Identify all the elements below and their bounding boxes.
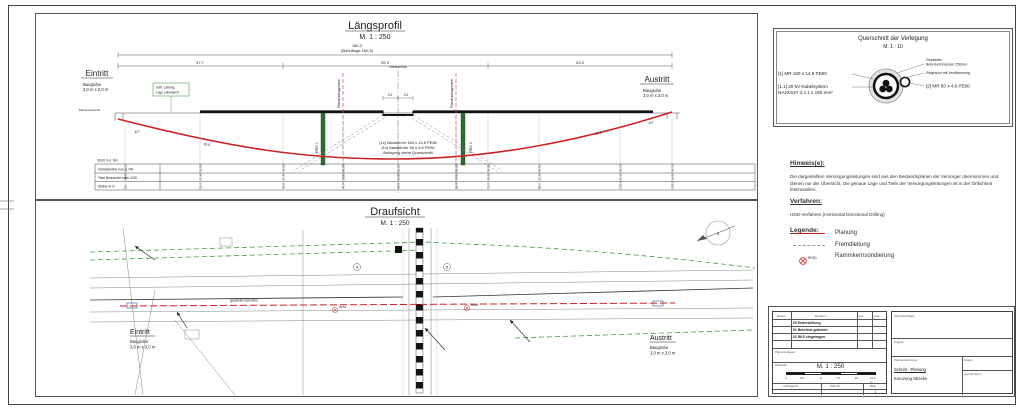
col-revision: Revision: [815, 314, 827, 318]
band-row-label-2: Tiefe Bohrachse unter GOK: [98, 176, 138, 180]
laengsprofil-title: Längsprofil: [348, 20, 402, 32]
col-gez: gez.: [859, 314, 865, 318]
band-value: 36,01: [538, 164, 542, 172]
plan-austritt-baugrube-1: Baugrube: [650, 345, 669, 350]
legend-label-rks: Rammkernsondierung: [835, 253, 894, 259]
band-value: 95,1: [538, 183, 542, 189]
legend-label-fremdleitung: Fremdleitung: [835, 242, 870, 248]
col-datum: Datum: [777, 314, 786, 318]
dim-left-label: 47,7: [196, 60, 205, 65]
band-value: 30,88: [455, 173, 459, 181]
rks-label-2: RKS 2: [469, 142, 473, 153]
revision-entry-1: 01 Bohrlinie geändert: [793, 328, 828, 332]
band-value: 75,0: [487, 183, 491, 189]
verfahren-section: Verfahren: HDD-Verfahren (Horizontal Dir…: [790, 190, 1008, 219]
callout-ringraum: Ringraum mit Verdämmung: [926, 71, 970, 75]
scale-tick-0: 0: [785, 376, 787, 380]
callout-bohr-2: Bohrdurchmesser 250mm: [926, 63, 967, 67]
scale-tick-5: 12,5 m: [870, 376, 876, 384]
gepr-label: geprüft durch: [964, 372, 982, 376]
plan-eintritt-label: Eintritt: [130, 329, 150, 336]
planung-line-swatch: [793, 233, 825, 234]
rks2-label: RKS2: [471, 303, 479, 307]
mr50-pipe: [900, 77, 909, 86]
datum-nn-label: 30,00 m ü. NN: [97, 159, 118, 163]
north-arrow-icon: N: [697, 221, 735, 245]
plan-austritt-baugrube-2: 3,0 m x 2,0 m: [650, 351, 676, 356]
plan-eintritt-baugrube-2: 3,0 m x 2,0 m: [130, 345, 156, 350]
planbez-value-2: Kreuzung Strecke: [894, 376, 927, 381]
draufsicht-border: [36, 201, 758, 397]
label-kabel-2: NA2XS2Y 3 x 1 x 150 mm²: [778, 90, 833, 95]
label-mr160: [1] MR 160 x 14,6 PE80: [778, 71, 827, 76]
col-gepr: gepr.: [874, 314, 881, 318]
querschnitt-box: Querschnitt der Verlegung M. 1 : 10 [1] …: [773, 28, 1013, 127]
band-value: 34,80: [124, 173, 128, 181]
green-note-1: vorh. Leitung: [156, 86, 175, 90]
cable-2: [886, 86, 893, 93]
plannr-label: Plan-Nr.: [830, 384, 841, 388]
rks1-label: RKS1: [339, 305, 347, 309]
massstab-value: M. 1 : 250: [773, 363, 888, 370]
utility-markers: 4 5: [354, 264, 451, 271]
austritt-baugrube-2: 3,0 m x 2,0 m: [643, 93, 669, 98]
hinweise-heading: Hinweis(e):: [790, 160, 825, 167]
querschnitt-drawing: Querschnitt der Verlegung M. 1 : 10 [1] …: [774, 29, 1012, 126]
band-row-label-1: Geländehöhe in m ü. NN: [98, 168, 134, 172]
band-value: 30,95: [487, 173, 491, 181]
title-block-left: Datum Revision gez. gepr. 00 Ersterstell…: [772, 311, 887, 394]
revision-entry-0: 00 Ersterstellung: [793, 321, 821, 325]
band-value: 31,40: [282, 173, 286, 181]
eintritt-label: Eintritt: [86, 69, 109, 78]
green-note-2: Lage unbekannt: [156, 91, 179, 95]
laengsprofil-scale: M. 1 : 250: [359, 34, 390, 41]
bohrlinie-label: geplante Bohrlinie: [230, 299, 258, 303]
band-value: 125,6: [619, 181, 623, 189]
rks-symbol-icon: RKS1: [793, 254, 829, 266]
north-label: N: [717, 232, 720, 236]
band-value: 160,3: [671, 181, 675, 189]
legend-item-rks: RKS1 Rammkernsondierung: [793, 253, 993, 265]
title-block: Datum Revision gez. gepr. 00 Ersterstell…: [768, 306, 1015, 397]
legende-section: Legende: Planung Fremdleitung RKS1 Rammk…: [790, 219, 1008, 237]
scale-bar: 0 2,5 5 7,5 10 12,5 m: [786, 372, 876, 382]
band-value: 68,4: [455, 183, 459, 189]
callout-bohr-1: Geplanter: [926, 58, 943, 62]
band-value: 35,93: [455, 164, 459, 172]
fold-marks: [0, 195, 16, 217]
ground-line: [115, 111, 680, 122]
rks-symbol-label: RKS1: [808, 256, 817, 260]
band-value: 36,10: [619, 164, 623, 172]
band-value: 59,3: [397, 183, 401, 189]
querschnitt-scale: M. 1 : 10: [883, 44, 903, 50]
bore-cross-section: [869, 69, 910, 103]
draufsicht-panel: Draufsicht M. 1 : 250 N: [35, 200, 758, 397]
band-value: 35,92: [397, 164, 401, 172]
entry-length: 15,4: [203, 142, 210, 147]
draufsicht-scale: M. 1 : 250: [381, 220, 410, 227]
label-mr50: [2] MR 50 x 4,6 PE80: [926, 84, 970, 89]
gleis-dim-right: 2,0: [404, 93, 409, 97]
legend-label-planung: Planung: [835, 230, 857, 236]
drawing-sheet: Längsprofil M. 1 : 250 160,3 (Bohrlänge …: [0, 0, 1024, 410]
band-value: 31,30: [538, 173, 542, 181]
hinweise-section: Hinweis(e): Die dargestellten Versorgung…: [790, 152, 1008, 194]
title-block-right: Vorhabenträger Projekt Planbezeichnung S…: [891, 311, 1013, 394]
revision-entry-2: 02 RKS eingetragen: [793, 335, 825, 339]
dim-bohrlaenge-label: (Bohrlänge 160,5): [341, 48, 374, 53]
planunterlagen-label: Planunterlagen:: [775, 350, 796, 354]
green-note-box: vorh. Leitung Lage unbekannt: [153, 83, 189, 112]
fremdleitung-line-swatch: [793, 245, 825, 246]
band-value: 35,95: [342, 164, 346, 172]
querschnitt-title: Querschnitt der Verlegung: [858, 36, 928, 42]
cable-1: [879, 86, 886, 93]
planbez-value-1: Schnitt - Planung: [894, 367, 926, 372]
planbez-label: Planbezeichnung: [894, 358, 917, 362]
plan-eintritt-baugrube-1: Baugrube: [130, 339, 149, 344]
entry-note: Bohransatzpunkt: [79, 108, 100, 112]
dim-right-label: 53,3: [576, 60, 585, 65]
band-value: 30,85: [397, 173, 401, 181]
band-value: 30,95: [342, 173, 346, 181]
mantelrohr-note-3: Belegung siehe Querschnitt: [383, 150, 433, 155]
band-value: 34,90: [671, 173, 675, 181]
plan-austritt-label: Austritt: [650, 335, 672, 342]
cable-3: [883, 80, 890, 87]
legend-item-planung: Planung: [793, 230, 993, 242]
exit-length: 16,1: [594, 131, 601, 136]
auftrag-label: Auftrags-Nr.: [783, 384, 799, 388]
draufsicht-title: Draufsicht: [370, 206, 420, 218]
band-value: 0,0: [124, 184, 128, 189]
band-row-label-3: Station in m: [98, 185, 115, 189]
datum-label: Datum: [964, 358, 973, 362]
gleisachse-label: Gleisachse: [389, 65, 406, 69]
blatt-value: 1: [863, 390, 888, 394]
band-value: 32,60: [619, 173, 623, 181]
entry-angle: 12°: [134, 129, 140, 134]
band-value: 36,20: [124, 164, 128, 172]
grenze-label-2: Flurstücksgrenze: [450, 79, 454, 108]
scale-tick-4: 10: [855, 376, 858, 380]
band-value: 36,18: [671, 164, 675, 172]
rks-label-1: RKS 1: [315, 142, 319, 153]
band-value: 15,4: [199, 183, 203, 189]
vorhaben-label: Vorhabenträger: [894, 314, 915, 318]
gleis-dim-left: 2,0: [388, 93, 393, 97]
laengsprofil-panel: Längsprofil M. 1 : 250 160,3 (Bohrlänge …: [35, 13, 758, 200]
blatt-label: Blatt: [870, 384, 876, 388]
eintritt-baugrube-2: 3,0 m x 2,0 m: [83, 87, 109, 92]
scale-tick-2: 5: [820, 376, 822, 380]
band-value: 35,8: [282, 183, 286, 189]
grenze-label-1: Flurstücksgrenze: [337, 79, 341, 108]
exit-angle: 10°: [648, 120, 654, 125]
scale-tick-3: 7,5: [836, 376, 840, 380]
verfahren-text: HDD-Verfahren (Horizontal Directional Dr…: [790, 212, 1008, 219]
band-value: 47,7: [342, 183, 346, 189]
band-value: 35,98: [282, 164, 286, 172]
scale-tick-1: 2,5: [800, 376, 804, 380]
railway-line: [395, 228, 437, 395]
label-kabel-1: [1.1] 20-kV-Kabelsystem: [778, 84, 828, 89]
band-value: 36,05: [199, 164, 203, 172]
austritt-label: Austritt: [645, 75, 671, 84]
verfahren-heading: Verfahren:: [790, 198, 822, 205]
bohrlinie-plan: [120, 303, 675, 306]
mantelrohr-note: (1x) Mantelrohr 160 x 14,6 PE80 (1x) Man…: [379, 140, 438, 155]
projekt-label: Projekt: [894, 340, 903, 344]
band-value: 32,40: [199, 173, 203, 181]
band-value: 35,95: [487, 164, 491, 172]
